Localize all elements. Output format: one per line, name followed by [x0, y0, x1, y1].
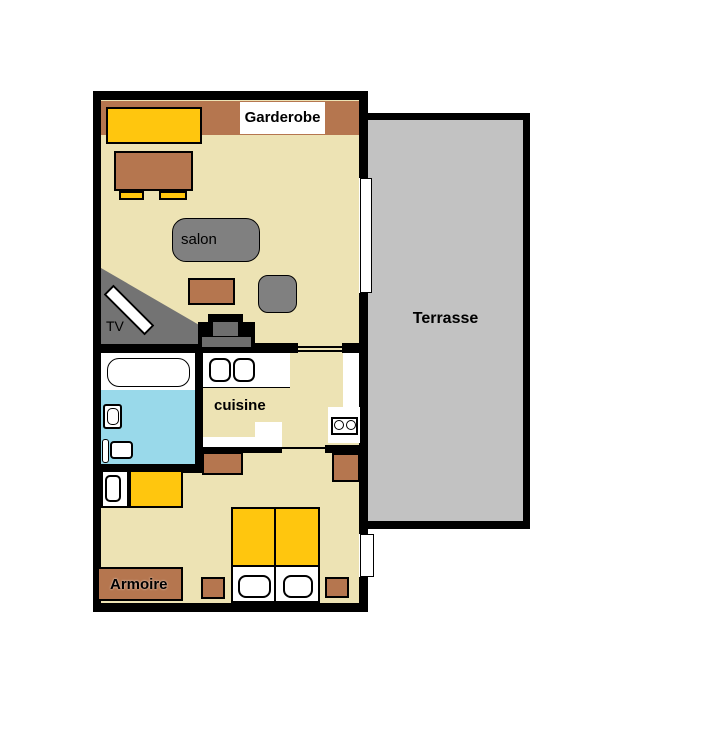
tv-label: TV: [106, 318, 124, 334]
cabinet-right: [332, 453, 360, 482]
sofa: [106, 107, 202, 144]
dining-table: [114, 151, 193, 191]
armchair: [258, 275, 297, 313]
pillow-left: [238, 575, 271, 598]
wall-right-middle: [359, 293, 368, 534]
terrace-label: Terrasse: [368, 310, 523, 328]
floor-plan: Terrasse Garderobe salon TV cuisine: [0, 0, 704, 740]
sink-basin: [107, 408, 119, 425]
wall-kitchen-south-right: [325, 445, 368, 453]
single-bed-pillow: [105, 475, 121, 502]
chair-1: [119, 191, 144, 200]
kitchen-counter-right: [343, 353, 359, 407]
rug: [188, 278, 235, 305]
oven-band: [202, 337, 251, 347]
window-bedroom: [360, 534, 374, 577]
toilet-tank: [102, 439, 109, 463]
garderobe-label: Garderobe: [240, 109, 325, 126]
door-line-salon-2: [298, 350, 342, 352]
wall-right-lower: [359, 577, 368, 612]
wall-salon-south-right: [342, 343, 368, 353]
cuisine-label: cuisine: [214, 397, 266, 414]
pillow-right: [283, 575, 313, 598]
door-line-kitchen: [282, 447, 325, 449]
window-salon-terrace: [360, 178, 372, 293]
wall-bottom: [93, 603, 368, 612]
oven-top-inner: [213, 322, 238, 336]
wall-right-upper: [359, 91, 368, 178]
dishwasher: [255, 422, 282, 447]
burner-2: [346, 420, 356, 430]
cabinet-under-kitchen: [202, 452, 243, 475]
burner-1: [334, 420, 344, 430]
kitchen-counter-bottom: [203, 437, 255, 447]
single-bed-mattress: [129, 470, 183, 508]
double-bed-right: [274, 507, 320, 567]
door-line-salon-1: [298, 346, 342, 348]
salon-label: salon: [181, 231, 217, 248]
nightstand-right: [325, 577, 349, 598]
armoire-label: Armoire: [110, 576, 168, 593]
kitchen-sink-2: [233, 358, 255, 382]
chair-2: [159, 191, 187, 200]
bathtub: [107, 358, 190, 387]
double-bed-left: [231, 507, 276, 567]
kitchen-sink-1: [209, 358, 231, 382]
nightstand-left: [201, 577, 225, 599]
toilet-bowl: [110, 441, 133, 459]
wall-top: [93, 91, 368, 100]
